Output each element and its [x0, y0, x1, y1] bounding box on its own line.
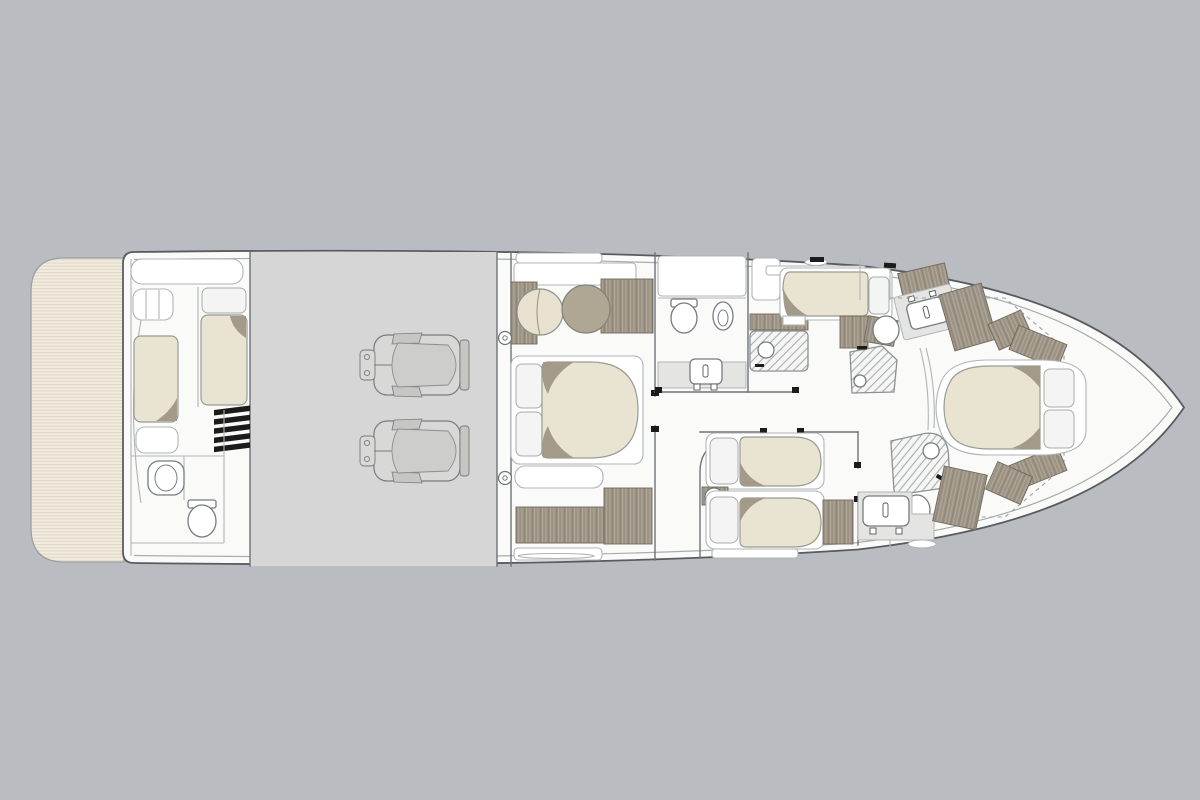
shower-drain — [854, 375, 866, 387]
bed-bench — [515, 466, 603, 488]
yacht-deck-plan — [0, 0, 1200, 800]
wood-floor — [516, 507, 604, 543]
door-hinge — [854, 462, 861, 468]
engine-room — [250, 252, 497, 566]
bath-cabinet — [658, 256, 746, 296]
master-bed — [511, 356, 643, 464]
deck-fitting — [908, 540, 936, 548]
armchair-taupe — [562, 285, 610, 333]
wood-floor — [604, 488, 652, 544]
toilet — [671, 299, 697, 333]
door-hinge — [651, 426, 659, 432]
transom-seat — [131, 259, 243, 284]
pillow — [710, 497, 738, 543]
pillow — [1044, 410, 1074, 448]
vanity-sink — [658, 359, 746, 390]
window-slat — [712, 549, 798, 558]
pillow — [869, 277, 889, 314]
door-hinge — [792, 387, 799, 393]
wood-floor — [823, 500, 853, 544]
door-hinge — [655, 387, 662, 393]
deck-track — [884, 263, 896, 269]
twin-bed-upper — [706, 433, 824, 489]
swim-platform — [31, 258, 124, 562]
deck-track — [810, 257, 824, 262]
crew-toilet — [188, 500, 216, 537]
pillow — [1044, 369, 1074, 407]
bidet — [713, 302, 733, 330]
crew-bed-starboard — [201, 288, 247, 405]
master-cabin — [499, 253, 660, 560]
engine-port — [360, 333, 469, 397]
crew-sink — [148, 461, 184, 495]
armchair-beige — [517, 289, 563, 335]
engine-starboard — [360, 419, 469, 483]
crew-bed-port — [134, 336, 178, 453]
window-slat — [516, 253, 602, 263]
wood-floor — [840, 316, 868, 348]
twin-bed-lower — [706, 491, 824, 549]
pillow — [516, 412, 542, 456]
floor-plan-canvas — [0, 0, 1200, 800]
bow-bed — [936, 360, 1086, 455]
crew-locker — [133, 289, 173, 320]
toilet — [873, 316, 899, 344]
pillow — [710, 438, 738, 484]
shower-drain — [758, 342, 774, 358]
pillow — [516, 364, 542, 408]
vip-bed — [780, 268, 892, 320]
